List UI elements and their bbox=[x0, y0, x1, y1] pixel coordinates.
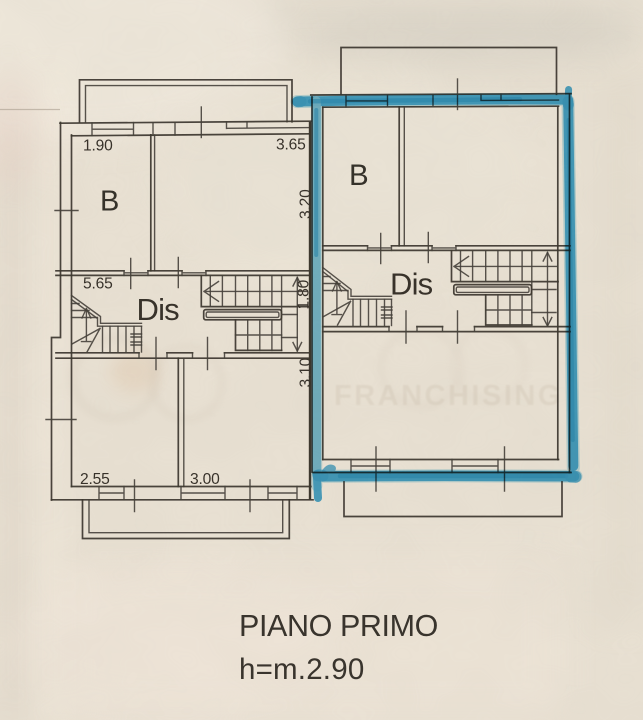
svg-text:Dis: Dis bbox=[390, 267, 433, 302]
svg-text:Dis: Dis bbox=[137, 292, 180, 327]
svg-text:h=m.2.90: h=m.2.90 bbox=[239, 653, 364, 686]
svg-text:1.80: 1.80 bbox=[296, 279, 313, 309]
svg-text:PIANO PRIMO: PIANO PRIMO bbox=[239, 609, 438, 643]
svg-text:3.00: 3.00 bbox=[190, 471, 220, 488]
svg-text:FRANCHISING: FRANCHISING bbox=[334, 380, 563, 412]
svg-text:B: B bbox=[100, 186, 119, 218]
svg-text:2.55: 2.55 bbox=[80, 471, 110, 488]
svg-text:1.90: 1.90 bbox=[83, 138, 113, 155]
svg-text:3.65: 3.65 bbox=[276, 137, 306, 154]
svg-text:5.65: 5.65 bbox=[83, 276, 113, 293]
svg-text:B: B bbox=[349, 159, 369, 192]
